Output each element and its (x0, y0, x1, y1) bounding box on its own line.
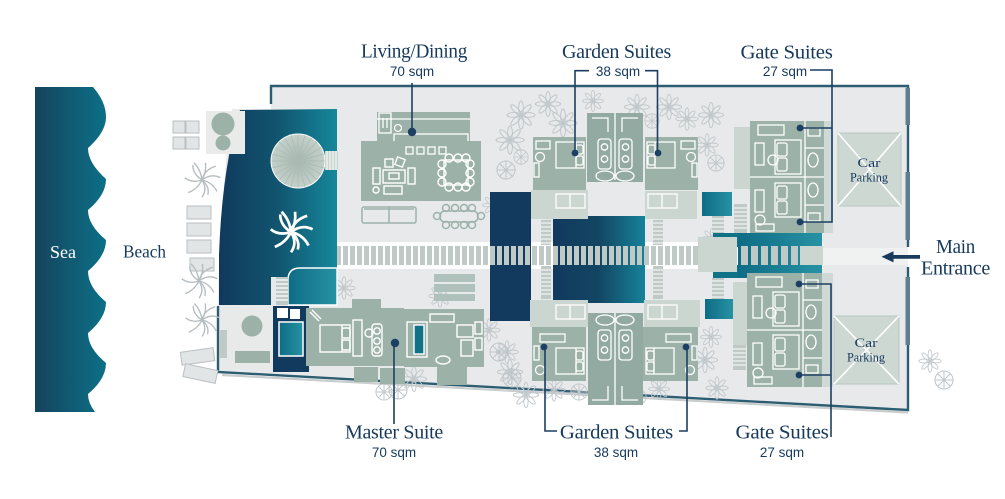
svg-text:Sea: Sea (50, 242, 76, 262)
svg-text:Living/Dining: Living/Dining (361, 41, 467, 63)
svg-text:Master Suite: Master Suite (345, 422, 443, 444)
svg-text:27 sqm: 27 sqm (760, 445, 804, 460)
svg-text:Car: Car (855, 335, 879, 350)
svg-text:Car: Car (858, 155, 882, 170)
svg-text:Garden Suites: Garden Suites (560, 421, 674, 443)
svg-text:Main: Main (936, 236, 975, 258)
svg-text:Entrance: Entrance (921, 258, 990, 280)
svg-text:27 sqm: 27 sqm (763, 64, 807, 79)
svg-text:70 sqm: 70 sqm (390, 64, 434, 79)
svg-text:70 sqm: 70 sqm (372, 445, 416, 460)
svg-text:Garden Suites: Garden Suites (562, 41, 672, 63)
svg-text:Parking: Parking (847, 350, 885, 365)
svg-text:Gate Suites: Gate Suites (741, 42, 834, 64)
svg-text:Beach: Beach (123, 242, 166, 262)
svg-text:38 sqm: 38 sqm (596, 64, 640, 79)
svg-text:Parking: Parking (850, 170, 888, 185)
svg-text:Gate Suites: Gate Suites (736, 422, 830, 444)
svg-text:38 sqm: 38 sqm (594, 445, 638, 460)
